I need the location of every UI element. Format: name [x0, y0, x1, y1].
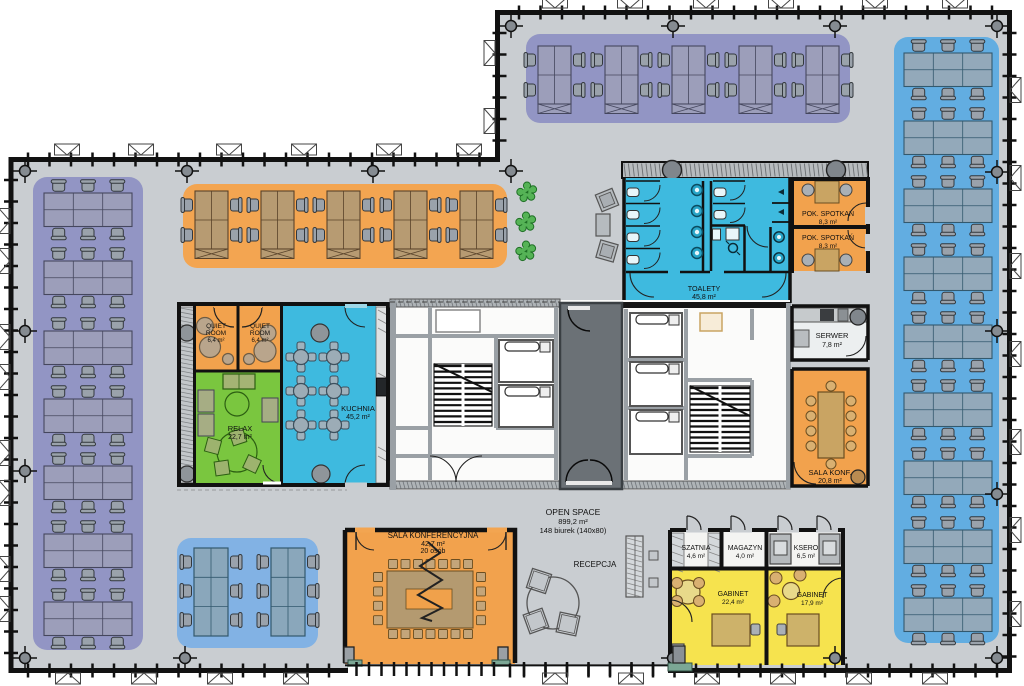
svg-text:TOALETY: TOALETY	[688, 284, 721, 293]
svg-text:899,2 m²: 899,2 m²	[558, 517, 588, 526]
svg-text:7,8 m²: 7,8 m²	[822, 342, 843, 349]
svg-text:4,6 m²: 4,6 m²	[687, 553, 706, 560]
svg-text:QUIET: QUIET	[250, 323, 270, 330]
svg-text:6,4 m²: 6,4 m²	[207, 338, 224, 344]
svg-text:SALA KONF.: SALA KONF.	[809, 468, 852, 477]
svg-text:148 biurek (140x80): 148 biurek (140x80)	[540, 526, 607, 535]
svg-text:KSERO: KSERO	[794, 545, 819, 552]
svg-text:SERWER: SERWER	[816, 331, 849, 340]
svg-text:RELAX: RELAX	[228, 424, 253, 433]
svg-text:42,7 m²: 42,7 m²	[421, 541, 445, 548]
svg-text:22,7 m²: 22,7 m²	[228, 434, 252, 441]
svg-text:20,8 m²: 20,8 m²	[818, 478, 842, 485]
svg-text:KUCHNIA: KUCHNIA	[341, 404, 375, 413]
svg-text:6,5 m²: 6,5 m²	[797, 553, 816, 560]
svg-text:POK. SPOTKAŃ: POK. SPOTKAŃ	[802, 233, 854, 242]
svg-text:SALA KONFERENCYJNA: SALA KONFERENCYJNA	[388, 531, 479, 540]
svg-text:OPEN SPACE: OPEN SPACE	[546, 507, 601, 517]
svg-text:GABINET: GABINET	[718, 591, 749, 598]
svg-text:22,4 m²: 22,4 m²	[722, 599, 745, 606]
svg-text:8,3 m²: 8,3 m²	[819, 219, 838, 226]
svg-text:ROOM: ROOM	[206, 330, 226, 337]
svg-text:8,3 m²: 8,3 m²	[819, 243, 838, 250]
svg-text:SZATNIA: SZATNIA	[681, 545, 710, 552]
svg-text:20 osób: 20 osób	[421, 548, 446, 555]
svg-text:6,4 m²: 6,4 m²	[251, 338, 268, 344]
svg-text:45,2 m²: 45,2 m²	[346, 414, 370, 421]
svg-text:45,8 m²: 45,8 m²	[692, 294, 716, 301]
svg-text:ROOM: ROOM	[250, 330, 270, 337]
svg-text:4,0 m²: 4,0 m²	[736, 553, 755, 560]
svg-text:MAGAZYN: MAGAZYN	[728, 545, 763, 552]
svg-text:RECEPCJA: RECEPCJA	[574, 560, 617, 569]
svg-text:QUIET: QUIET	[206, 323, 226, 330]
svg-text:17,9 m²: 17,9 m²	[801, 600, 824, 607]
svg-text:POK. SPOTKAŃ: POK. SPOTKAŃ	[802, 209, 854, 218]
